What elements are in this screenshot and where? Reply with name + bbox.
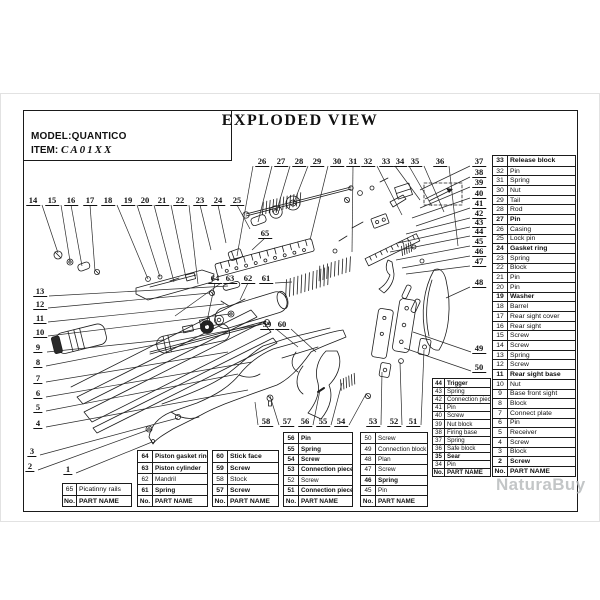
part-name: Screw — [508, 341, 575, 350]
part-number: 8 — [493, 399, 508, 408]
callout-35: 35 — [408, 156, 422, 167]
part-name: Mandril — [153, 474, 207, 484]
part-number: 27 — [493, 215, 508, 224]
part-row: 10Nut — [493, 379, 575, 389]
part-name: Gasket ring — [508, 244, 575, 253]
part-name: Connection piece — [299, 486, 352, 495]
part-number: 16 — [493, 322, 508, 331]
part-name: Spring — [508, 351, 575, 360]
part-name: Screw — [508, 438, 575, 447]
part-number: 24 — [493, 244, 508, 253]
callout-7: 7 — [33, 373, 42, 384]
callout-2: 2 — [25, 461, 34, 472]
callout-58: 58 — [259, 416, 273, 427]
part-name: Screw — [228, 463, 278, 473]
callout-13: 13 — [33, 286, 47, 297]
part-row: 44Trigger — [433, 379, 490, 387]
part-number: 9 — [493, 390, 508, 399]
part-number: 34 — [433, 461, 445, 468]
part-name: PART NAME — [77, 496, 131, 506]
part-row: 37Spring — [433, 436, 490, 444]
callout-61: 61 — [259, 273, 273, 284]
part-number: No. — [433, 469, 445, 476]
part-row: 30Nut — [493, 185, 575, 195]
callout-6: 6 — [33, 388, 42, 399]
part-number: No. — [138, 496, 153, 506]
part-name: Nut block — [445, 420, 490, 427]
part-number: 40 — [433, 412, 445, 419]
part-number: 10 — [493, 380, 508, 389]
part-number: 31 — [493, 176, 508, 185]
callout-32: 32 — [361, 156, 375, 167]
part-row: 17Rear sight cover — [493, 311, 575, 321]
table-header-row: No.PART NAME — [284, 495, 352, 505]
part-name: Nut — [508, 186, 575, 195]
part-name: Spring — [299, 444, 352, 453]
part-row: 42Connection piece — [433, 395, 490, 403]
part-number: 21 — [493, 273, 508, 282]
part-row: 14Screw — [493, 340, 575, 350]
part-name: Screw — [228, 485, 278, 495]
part-name: Base front sight — [508, 390, 575, 399]
callout-53: 53 — [366, 416, 380, 427]
callout-22: 22 — [173, 195, 187, 206]
part-number: 52 — [284, 476, 299, 485]
part-number: 35 — [433, 453, 445, 460]
part-number: 50 — [361, 433, 376, 443]
part-name: Connection block — [376, 444, 427, 453]
part-name: Spring — [445, 437, 490, 444]
callout-28: 28 — [292, 156, 306, 167]
part-name: Screw — [508, 457, 575, 466]
part-number: 46 — [361, 476, 376, 485]
callout-34: 34 — [393, 156, 407, 167]
part-name: Sear — [445, 453, 490, 460]
callout-24: 24 — [211, 195, 225, 206]
callout-27: 27 — [274, 156, 288, 167]
callout-14: 14 — [26, 195, 40, 206]
part-number: 37 — [433, 437, 445, 444]
callout-29: 29 — [310, 156, 324, 167]
part-number: 64 — [138, 451, 153, 462]
part-row: 59Screw — [213, 462, 278, 473]
part-number: 36 — [433, 445, 445, 452]
callout-56: 56 — [298, 416, 312, 427]
part-number: 5 — [493, 428, 508, 437]
part-name: Release block — [508, 156, 575, 166]
callout-23: 23 — [193, 195, 207, 206]
part-number: 12 — [493, 360, 508, 369]
part-row: 51Connection piece — [284, 485, 352, 495]
callout-55: 55 — [316, 416, 330, 427]
callout-25: 25 — [230, 195, 244, 206]
item-line: ITEM: CA01XX — [31, 144, 113, 156]
titleblock-divider — [24, 160, 231, 161]
part-row: 52Screw — [284, 475, 352, 485]
part-name: Connection piece — [299, 465, 352, 474]
part-number: 61 — [138, 485, 153, 495]
callout-30: 30 — [330, 156, 344, 167]
part-name: Screw — [508, 360, 575, 369]
part-row: 7Connect plate — [493, 408, 575, 418]
right-parts-table: 33Release block32Pin31Spring30Nut29Tail2… — [492, 155, 576, 477]
model-label: MODEL: — [31, 131, 72, 142]
part-row: 63Piston cylinder — [138, 462, 207, 473]
part-name: Screw — [376, 465, 427, 474]
part-row: 16Rear sight — [493, 321, 575, 331]
part-name: Connection piece — [445, 396, 490, 403]
part-number: 44 — [433, 379, 445, 387]
part-number: 62 — [138, 474, 153, 484]
part-number: 29 — [493, 196, 508, 205]
part-name: Barrel — [508, 302, 575, 311]
part-row: 34Pin — [433, 460, 490, 468]
part-number: 42 — [433, 396, 445, 403]
part-name: Pin — [376, 486, 427, 495]
part-name: PART NAME — [299, 496, 352, 505]
callout-4: 4 — [33, 418, 42, 429]
callout-62: 62 — [241, 273, 255, 284]
part-number: 19 — [493, 293, 508, 302]
part-name: Screw — [508, 331, 575, 340]
bottom-table-60: 60Stick face59Screw58Stock57ScrewNo.PART… — [212, 450, 279, 507]
part-number: 65 — [63, 484, 77, 495]
part-name: Firing base — [445, 429, 490, 436]
callout-1: 1 — [63, 464, 72, 475]
part-number: 4 — [493, 438, 508, 447]
part-row: 54Screw — [284, 454, 352, 464]
part-number: 30 — [493, 186, 508, 195]
part-row: 29Tail — [493, 195, 575, 205]
naturabuy-watermark: NaturaBuy — [496, 475, 586, 495]
callout-49: 49 — [472, 343, 486, 354]
part-row: 45Pin — [361, 485, 427, 495]
part-row: 19Washer — [493, 292, 575, 302]
part-row: 31Spring — [493, 175, 575, 185]
model-line: MODEL:QUANTICO — [31, 131, 127, 142]
part-name: Block — [508, 448, 575, 457]
part-number: 23 — [493, 254, 508, 263]
part-number: 55 — [284, 444, 299, 453]
part-number: 18 — [493, 302, 508, 311]
part-row: 41Pin — [433, 403, 490, 411]
callout-37: 37 — [472, 156, 486, 167]
part-row: 50Screw — [361, 433, 427, 443]
callout-36: 36 — [433, 156, 447, 167]
part-row: 22Block — [493, 263, 575, 273]
exploded-view-sheet: EXPLODED VIEW MODEL:QUANTICO ITEM: CA01X… — [0, 0, 600, 600]
callout-63: 63 — [223, 273, 237, 284]
part-number: 6 — [493, 419, 508, 428]
part-row: 35Sear — [433, 452, 490, 460]
part-row: 32Pin — [493, 166, 575, 176]
part-row: 39Nut block — [433, 419, 490, 427]
callout-9: 9 — [33, 342, 42, 353]
callout-47: 47 — [472, 256, 486, 267]
part-row: 56Pin — [284, 433, 352, 443]
part-name: Spring — [508, 254, 575, 263]
part-number: 54 — [284, 455, 299, 464]
callout-52: 52 — [387, 416, 401, 427]
table-header-row: No.PART NAME — [63, 495, 131, 506]
part-row: 27Pin — [493, 214, 575, 224]
callout-59: 59 — [260, 319, 274, 330]
part-row: 46Spring — [361, 475, 427, 485]
table-header-row: No.PART NAME — [433, 468, 490, 476]
part-number: 63 — [138, 463, 153, 473]
part-row: 21Pin — [493, 272, 575, 282]
callout-50: 50 — [472, 362, 486, 373]
part-row: 8Block — [493, 398, 575, 408]
part-name: Block — [508, 264, 575, 273]
part-number: 25 — [493, 235, 508, 244]
model-value: QUANTICO — [72, 131, 127, 142]
part-row: 49Connection block — [361, 443, 427, 453]
part-name: PART NAME — [153, 496, 207, 506]
part-row: 24Gasket ring — [493, 243, 575, 253]
callout-18: 18 — [101, 195, 115, 206]
part-name: Pin — [508, 419, 575, 428]
part-name: Pin — [508, 215, 575, 224]
table-header-row: No.PART NAME — [361, 495, 427, 505]
part-row: 3Block — [493, 447, 575, 457]
part-name: Safe block — [445, 445, 490, 452]
callout-21: 21 — [155, 195, 169, 206]
part-name: Pin — [508, 273, 575, 282]
part-name: Receiver — [508, 428, 575, 437]
part-number: No. — [213, 496, 228, 506]
part-number: 22 — [493, 264, 508, 273]
part-row: 61Spring — [138, 484, 207, 495]
callout-48: 48 — [472, 277, 486, 288]
part-number: 56 — [284, 433, 299, 443]
callout-17: 17 — [83, 195, 97, 206]
part-row: 64Piston gasket ring — [138, 451, 207, 462]
table-header-row: No.PART NAME — [138, 495, 207, 506]
bottom-table-56: 56Pin55Spring54Screw53Connection piece52… — [283, 432, 353, 507]
part-name: Plan — [376, 455, 427, 464]
part-row: 26Casing — [493, 224, 575, 234]
callout-16: 16 — [64, 195, 78, 206]
part-number: 2 — [493, 457, 508, 466]
callout-12: 12 — [33, 299, 47, 310]
part-row: 55Spring — [284, 443, 352, 453]
part-name: PART NAME — [376, 496, 427, 505]
part-number: 59 — [213, 463, 228, 473]
part-number: 47 — [361, 465, 376, 474]
part-name: Rear sight cover — [508, 312, 575, 321]
bottom-table-65: 65Picatinny railsNo.PART NAME — [62, 483, 132, 507]
callout-5: 5 — [33, 402, 42, 413]
part-number: 58 — [213, 474, 228, 484]
part-number: 53 — [284, 465, 299, 474]
callout-64: 64 — [208, 273, 222, 284]
part-row: 28Rod — [493, 204, 575, 214]
part-number: 45 — [361, 486, 376, 495]
part-row: 20Pin — [493, 282, 575, 292]
part-row: 18Barrel — [493, 301, 575, 311]
part-name: Piston gasket ring — [153, 451, 207, 462]
part-number: 15 — [493, 331, 508, 340]
part-name: Screw — [445, 412, 490, 419]
part-number: 49 — [361, 444, 376, 453]
part-row: 23Spring — [493, 253, 575, 263]
part-number: No. — [361, 496, 376, 505]
callout-39: 39 — [472, 177, 486, 188]
bottom-table-64: 64Piston gasket ring63Piston cylinder62M… — [137, 450, 208, 507]
table-header-row: No.PART NAME — [213, 495, 278, 506]
part-name: Pin — [299, 433, 352, 443]
callout-11: 11 — [33, 313, 46, 324]
part-row: 13Spring — [493, 350, 575, 360]
part-name: Pin — [508, 167, 575, 176]
part-row: 48Plan — [361, 454, 427, 464]
part-row: 5Receiver — [493, 427, 575, 437]
part-number: 57 — [213, 485, 228, 495]
part-name: Spring — [376, 476, 427, 485]
part-name: Block — [508, 399, 575, 408]
callout-8: 8 — [33, 357, 42, 368]
part-name: Rear sight base — [508, 370, 575, 379]
part-row: 60Stick face — [213, 451, 278, 462]
part-name: Trigger — [445, 379, 490, 387]
part-row: 65Picatinny rails — [63, 484, 131, 495]
part-row: 40Screw — [433, 411, 490, 419]
part-number: 39 — [433, 420, 445, 427]
part-name: Pin — [508, 283, 575, 292]
part-number: 17 — [493, 312, 508, 321]
callout-60: 60 — [275, 319, 289, 330]
part-row: 62Mandril — [138, 473, 207, 484]
callout-3: 3 — [27, 446, 36, 457]
callout-26: 26 — [255, 156, 269, 167]
part-name: Pin — [445, 461, 490, 468]
part-name: Screw — [299, 476, 352, 485]
callout-15: 15 — [45, 195, 59, 206]
part-name: Tail — [508, 196, 575, 205]
part-name: PART NAME — [445, 469, 490, 476]
callout-19: 19 — [121, 195, 135, 206]
part-row: 47Screw — [361, 464, 427, 474]
part-number: 41 — [433, 404, 445, 411]
part-name: Spring — [445, 388, 490, 395]
bottom-table-50: 50Screw49Connection block48Plan47Screw46… — [360, 432, 428, 507]
callout-54: 54 — [334, 416, 348, 427]
part-row: 6Pin — [493, 418, 575, 428]
part-name: Piston cylinder — [153, 463, 207, 473]
part-row: 33Release block — [493, 156, 575, 166]
part-number: 7 — [493, 409, 508, 418]
part-number: 3 — [493, 448, 508, 457]
part-row: 2Screw — [493, 456, 575, 466]
part-name: Pin — [445, 404, 490, 411]
part-number: 48 — [361, 455, 376, 464]
item-label: ITEM: — [31, 145, 58, 156]
part-number: 43 — [433, 388, 445, 395]
part-number: 60 — [213, 451, 228, 462]
part-name: Washer — [508, 293, 575, 302]
part-number: 14 — [493, 341, 508, 350]
part-name: Lock pin — [508, 235, 575, 244]
part-name: Casing — [508, 225, 575, 234]
part-number: 38 — [433, 429, 445, 436]
part-row: 57Screw — [213, 484, 278, 495]
part-name: Stick face — [228, 451, 278, 462]
part-row: 9Base front sight — [493, 389, 575, 399]
callout-20: 20 — [138, 195, 152, 206]
part-row: 58Stock — [213, 473, 278, 484]
part-row: 12Screw — [493, 359, 575, 369]
part-name: Nut — [508, 380, 575, 389]
part-name: Rod — [508, 205, 575, 214]
part-row: 11Rear sight base — [493, 369, 575, 379]
callout-57: 57 — [280, 416, 294, 427]
callout-33: 33 — [379, 156, 393, 167]
callout-31: 31 — [346, 156, 360, 167]
part-number: 20 — [493, 283, 508, 292]
item-value: CA01XX — [61, 144, 113, 156]
part-row: 38Firing base — [433, 428, 490, 436]
page-title: EXPLODED VIEW — [0, 112, 600, 130]
part-row: 53Connection piece — [284, 464, 352, 474]
part-number: No. — [284, 496, 299, 505]
part-row: 36Safe block — [433, 444, 490, 452]
part-number: 33 — [493, 156, 508, 166]
part-name: Spring — [153, 485, 207, 495]
part-row: 15Screw — [493, 330, 575, 340]
part-number: 28 — [493, 205, 508, 214]
part-number: 51 — [284, 486, 299, 495]
part-number: 11 — [493, 370, 508, 379]
part-name: Screw — [299, 455, 352, 464]
part-number: No. — [63, 496, 77, 506]
callout-65: 65 — [258, 228, 272, 239]
part-row: 25Lock pin — [493, 234, 575, 244]
part-name: Picatinny rails — [77, 484, 131, 495]
part-name: PART NAME — [228, 496, 278, 506]
callout-51: 51 — [406, 416, 420, 427]
part-row: 43Spring — [433, 387, 490, 395]
part-number: 32 — [493, 167, 508, 176]
part-number: 13 — [493, 351, 508, 360]
part-number: 26 — [493, 225, 508, 234]
part-row: 4Screw — [493, 437, 575, 447]
part-name: Rear sight — [508, 322, 575, 331]
callout-10: 10 — [33, 327, 47, 338]
part-name: Screw — [376, 433, 427, 443]
part-name: Connect plate — [508, 409, 575, 418]
part-name: Stock — [228, 474, 278, 484]
part-name: Spring — [508, 176, 575, 185]
right-parts-table-2: 44Trigger43Spring42Connection piece41Pin… — [432, 378, 491, 477]
